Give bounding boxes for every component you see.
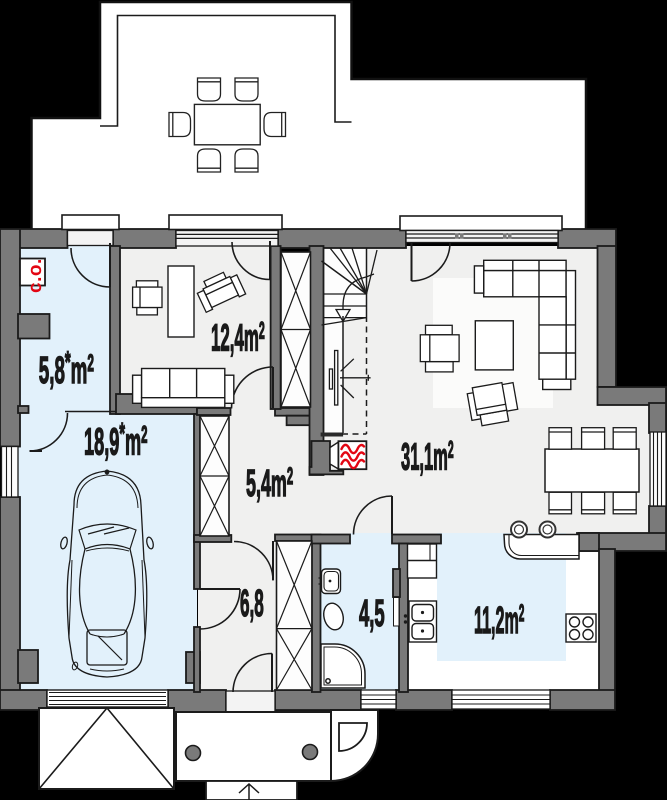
svg-text:c.o.: c.o. <box>25 258 46 293</box>
svg-text:6,8: 6,8 <box>240 583 264 625</box>
svg-text:18,9*m2: 18,9*m2 <box>84 418 147 464</box>
svg-text:11,2m2: 11,2m2 <box>474 600 524 642</box>
svg-text:5,4m2: 5,4m2 <box>246 463 293 505</box>
svg-text:4,5: 4,5 <box>359 593 385 635</box>
svg-text:31,1m2: 31,1m2 <box>401 437 454 479</box>
svg-text:12,4m2: 12,4m2 <box>211 318 265 360</box>
